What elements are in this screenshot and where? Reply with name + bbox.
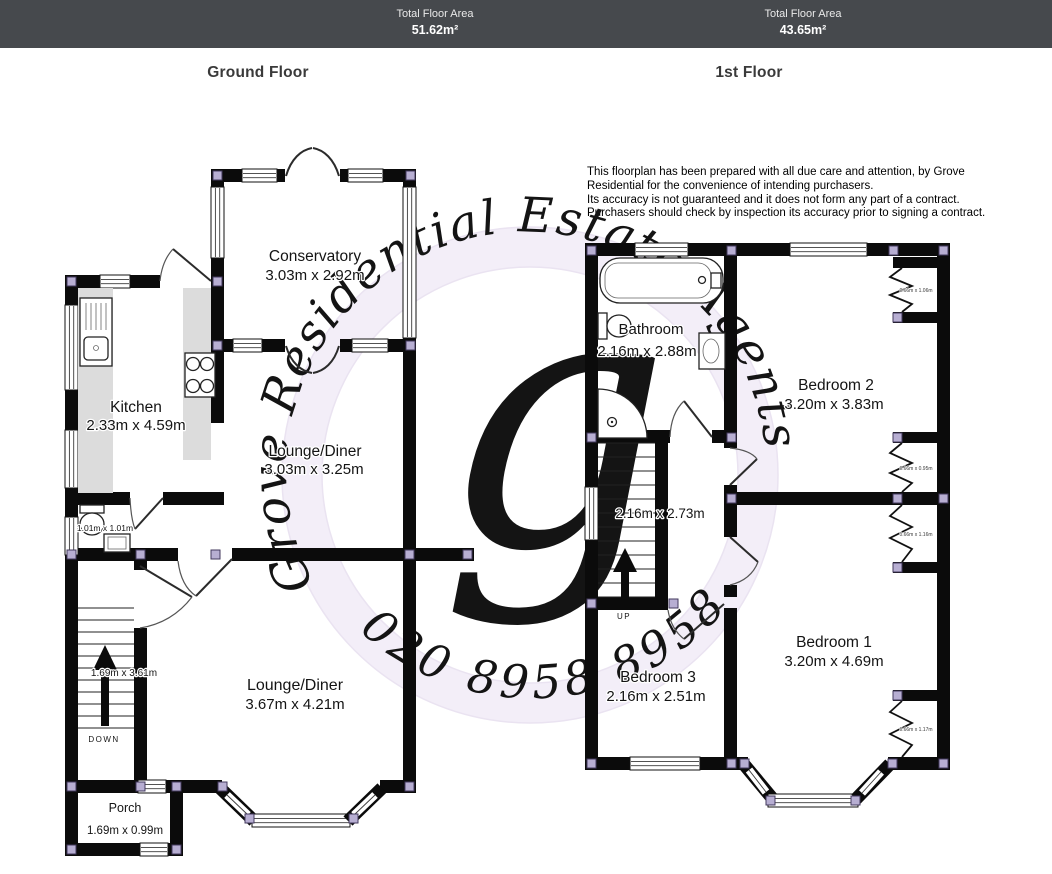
alcove1-dims: 0.66m x 1.06m: [899, 288, 932, 294]
alcove2-dims: 0.66m x 0.95m: [899, 466, 932, 472]
window: [630, 757, 700, 770]
bathroom-dims: 2.16m x 2.88m: [597, 343, 696, 360]
window: [790, 243, 867, 256]
stairs-arrow: [613, 548, 637, 572]
first-alcoves: 0.66m x 1.06m 0.66m x 0.95m 0.66m x 1.16…: [890, 268, 933, 757]
bathroom-name: Bathroom: [618, 321, 683, 338]
stairs-up-label: UP: [617, 612, 631, 621]
landing-dims: 2.16m x 2.73m: [615, 506, 704, 521]
bedroom1-name: Bedroom 1: [796, 634, 872, 651]
bedroom2-name: Bedroom 2: [798, 377, 874, 394]
first-floor-plan: 0.66m x 1.06m 0.66m x 0.95m 0.66m x 1.16…: [0, 0, 1052, 874]
bedroom1-dims: 3.20m x 4.69m: [784, 653, 883, 670]
alcove3-dims: 0.66m x 1.16m: [899, 532, 932, 538]
bay-window: [742, 762, 890, 807]
bathtub: [600, 258, 723, 303]
bedroom3-name: Bedroom 3: [620, 669, 696, 686]
bathroom-basin: [699, 333, 725, 369]
first-room-labels: Bathroom 2.16m x 2.88m Bedroom 2 3.20m x…: [597, 321, 883, 705]
window: [585, 487, 598, 540]
alcove4-dims: 0.66m x 1.17m: [899, 727, 932, 733]
floorplan-page: Total Floor Area 51.62m² Total Floor Are…: [0, 0, 1052, 874]
window: [635, 243, 688, 256]
bedroom2-dims: 3.20m x 3.83m: [784, 396, 883, 413]
bedroom3-dims: 2.16m x 2.51m: [606, 688, 705, 705]
corner-shower: [598, 389, 647, 438]
